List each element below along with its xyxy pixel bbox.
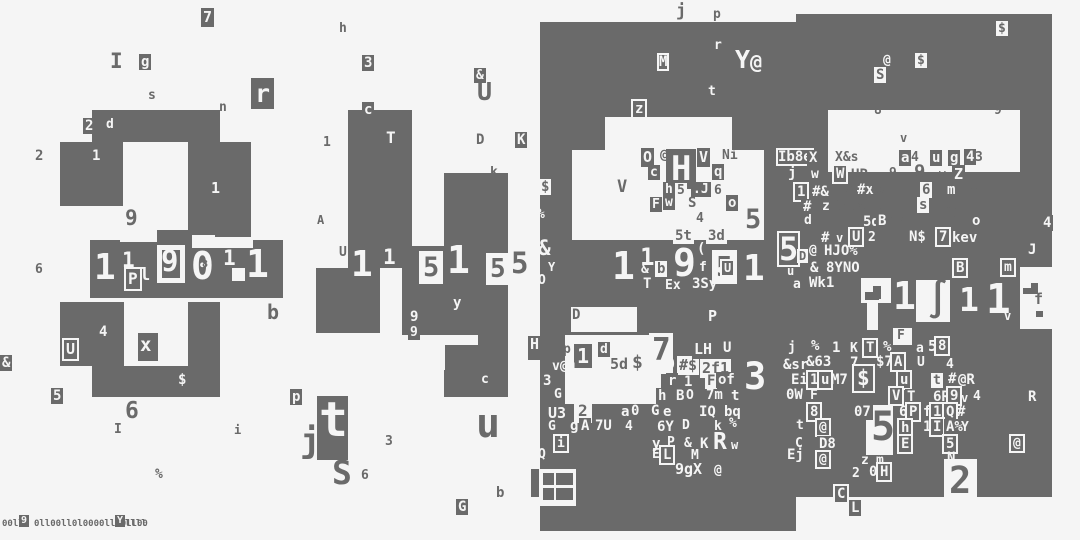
noise-glyph: %m1	[858, 200, 881, 213]
noise-glyph: 07	[852, 404, 873, 420]
noise-glyph: r	[251, 78, 274, 109]
noise-glyph: g	[570, 419, 578, 433]
noise-glyph: 1	[223, 248, 236, 269]
noise-glyph: 9	[410, 310, 418, 324]
noise-glyph: H	[878, 464, 890, 480]
noise-glyph: E	[899, 436, 911, 452]
noise-glyph: 5	[51, 388, 63, 404]
noise-glyph: &	[0, 355, 12, 371]
noise-glyph: U	[477, 79, 492, 104]
noise-glyph: 9	[125, 208, 138, 229]
noise-glyph: A	[892, 354, 904, 370]
noise-glyph: 1	[574, 344, 592, 368]
noise-glyph: &	[538, 238, 551, 259]
noise-glyph: Ej	[787, 448, 804, 462]
noise-block	[867, 303, 878, 330]
noise-glyph: &	[810, 261, 818, 275]
noise-glyph: V	[890, 388, 902, 404]
noise-glyph: s	[148, 89, 156, 102]
noise-block	[543, 488, 554, 500]
noise-glyph: G	[554, 388, 562, 401]
noise-glyph: 9	[408, 325, 420, 340]
noise-canvas: 7hIgsrn2d21191AU611Pl90811b4Ux&5$6pIi%jt…	[0, 0, 1080, 540]
noise-glyph: w	[663, 195, 675, 210]
noise-glyph: (	[697, 242, 705, 256]
noise-glyph: Ei	[791, 373, 808, 387]
noise-block	[556, 488, 573, 500]
noise-glyph: 3Sy	[692, 277, 717, 291]
noise-glyph: D	[682, 419, 690, 432]
noise-glyph: 2	[868, 231, 876, 244]
noise-glyph: 5p	[899, 197, 916, 211]
noise-glyph: k	[490, 166, 498, 179]
noise-glyph: 3	[541, 373, 553, 389]
noise-glyph: $	[854, 366, 873, 391]
noise-glyph: g	[139, 54, 151, 70]
noise-glyph: K	[515, 132, 527, 148]
noise-glyph: 3	[362, 55, 374, 71]
noise-glyph: %	[729, 417, 737, 430]
noise-glyph: T	[386, 130, 396, 146]
noise-glyph: b	[496, 486, 504, 500]
noise-glyph: j	[300, 424, 320, 458]
noise-glyph: F	[897, 329, 905, 342]
noise-block	[348, 110, 412, 246]
noise-glyph: T	[905, 389, 917, 405]
noise-glyph: H	[530, 337, 539, 352]
noise-glyph: 5d	[610, 357, 628, 372]
noise-glyph: o	[726, 195, 738, 211]
noise-glyph: t	[931, 373, 943, 388]
noise-glyph: 1	[795, 184, 807, 200]
noise-block	[873, 286, 881, 299]
noise-glyph: 6	[125, 400, 139, 423]
noise-glyph: P	[706, 307, 719, 326]
noise-glyph: p	[563, 343, 571, 356]
noise-glyph: E	[652, 448, 660, 461]
noise-glyph: $	[539, 179, 551, 195]
noise-glyph: i	[555, 436, 567, 451]
noise-glyph: jX	[845, 215, 862, 229]
noise-glyph: 6	[920, 182, 932, 198]
noise-glyph: 5	[419, 251, 443, 284]
noise-glyph: S	[688, 196, 696, 210]
noise-glyph: w	[939, 168, 946, 179]
noise-glyph: 4	[973, 390, 981, 403]
noise-glyph: h	[899, 420, 911, 436]
noise-glyph: K	[698, 436, 710, 452]
noise-glyph: U	[722, 261, 733, 275]
noise-glyph: 1	[246, 245, 269, 283]
noise-glyph: 1	[893, 277, 916, 315]
noise-glyph: O	[686, 389, 694, 402]
noise-glyph: D	[797, 249, 808, 263]
noise-glyph: s	[917, 197, 929, 213]
noise-glyph: Y	[961, 421, 969, 434]
noise-glyph: v	[1004, 310, 1011, 322]
noise-glyph: D	[572, 308, 580, 322]
noise-block	[445, 335, 478, 345]
noise-glyph: 6	[361, 469, 369, 482]
noise-block	[605, 117, 732, 150]
noise-glyph: 4	[696, 212, 704, 225]
noise-glyph: J	[1028, 243, 1036, 257]
noise-glyph: Ni	[722, 149, 738, 162]
noise-glyph: K	[634, 206, 648, 229]
noise-glyph: 9	[161, 247, 178, 276]
noise-glyph: Q	[944, 404, 956, 420]
noise-glyph: #	[946, 371, 958, 387]
noise-glyph: c	[970, 184, 978, 197]
noise-glyph: i	[234, 424, 241, 436]
noise-glyph: U	[917, 356, 925, 369]
noise-glyph: 8	[202, 260, 208, 270]
noise-glyph: ci	[946, 199, 963, 213]
noise-glyph: 4	[625, 420, 633, 433]
noise-glyph: 1	[832, 341, 840, 355]
noise-glyph: I	[110, 51, 123, 72]
noise-glyph: %	[881, 339, 893, 355]
noise-glyph: z	[861, 454, 869, 467]
noise-glyph: $	[996, 21, 1008, 36]
noise-glyph: X	[807, 150, 819, 166]
noise-glyph: $	[178, 373, 186, 387]
noise-block	[1036, 311, 1043, 317]
noise-glyph: &sr	[783, 358, 808, 372]
noise-glyph: 4	[946, 358, 954, 371]
noise-glyph: @	[714, 464, 722, 477]
noise-glyph: p	[290, 389, 302, 405]
noise-glyph: M	[659, 55, 667, 69]
noise-glyph: S	[874, 67, 886, 83]
noise-glyph: R	[713, 431, 727, 454]
noise-glyph: C	[835, 486, 847, 502]
noise-glyph: y	[451, 295, 463, 311]
noise-glyph: 1	[211, 181, 220, 196]
noise-glyph: u	[930, 150, 942, 166]
noise-glyph: 5	[511, 249, 528, 278]
noise-glyph: 0	[869, 465, 877, 479]
noise-glyph: t	[796, 419, 804, 432]
noise-glyph: 8	[874, 104, 882, 117]
noise-block	[531, 469, 539, 497]
noise-glyph: U	[339, 246, 347, 259]
noise-glyph: T	[643, 277, 651, 291]
noise-glyph: O	[538, 274, 546, 287]
noise-glyph: Q	[538, 448, 546, 461]
noise-glyph: UP	[851, 168, 868, 182]
noise-glyph: 0	[631, 404, 639, 418]
noise-glyph: z	[633, 101, 645, 117]
noise-glyph: U	[721, 340, 733, 356]
noise-block	[92, 366, 220, 397]
noise-glyph: u	[819, 372, 831, 388]
noise-glyph: a	[899, 150, 911, 166]
noise-glyph: P	[907, 404, 919, 420]
noise-glyph: 9	[994, 104, 1002, 117]
noise-glyph: Qz	[871, 184, 887, 197]
noise-glyph: 1	[323, 136, 331, 149]
noise-glyph: 7U	[595, 419, 612, 433]
noise-glyph: 1	[959, 283, 979, 316]
noise-glyph: $	[632, 354, 643, 372]
noise-glyph: K	[948, 215, 956, 228]
noise-glyph: 7m	[706, 388, 723, 402]
noise-glyph: 6Y	[657, 420, 674, 434]
noise-glyph: @	[817, 452, 829, 467]
noise-glyph: p9y	[650, 211, 677, 226]
noise-glyph: t	[319, 396, 348, 444]
noise-glyph: 2	[35, 149, 43, 163]
noise-glyph: c	[362, 102, 374, 118]
noise-glyph: Y	[735, 47, 750, 72]
noise-glyph: N$	[909, 230, 926, 244]
noise-glyph: 1	[743, 251, 765, 287]
noise-glyph: 9	[889, 167, 897, 180]
noise-glyph: r	[666, 373, 678, 389]
noise-block	[380, 335, 445, 370]
noise-glyph: 3	[975, 151, 983, 164]
noise-glyph: f	[699, 261, 707, 274]
noise-glyph: K	[850, 342, 858, 355]
noise-glyph: 2	[852, 467, 860, 480]
noise-block	[543, 473, 554, 485]
noise-glyph: 1	[447, 241, 470, 279]
noise-glyph: RnB	[832, 200, 855, 213]
noise-glyph: Y	[548, 261, 555, 273]
noise-glyph: p	[713, 8, 721, 21]
noise-glyph: W	[426, 371, 434, 385]
noise-glyph: 5	[675, 183, 687, 198]
noise-glyph: d	[106, 118, 114, 131]
noise-glyph: 6	[714, 184, 722, 197]
noise-glyph: j	[676, 3, 686, 20]
noise-glyph: G	[548, 420, 556, 433]
noise-glyph: A	[579, 418, 591, 434]
noise-glyph: 5	[779, 233, 798, 265]
noise-glyph: z	[820, 199, 832, 214]
noise-glyph: 3	[744, 358, 766, 395]
noise-glyph: &63	[806, 355, 831, 369]
noise-glyph: $7	[876, 355, 893, 369]
noise-glyph: 7	[201, 8, 214, 27]
noise-glyph: ∫	[927, 282, 949, 318]
noise-glyph: D	[476, 133, 484, 147]
noise-glyph: v	[900, 132, 907, 144]
noise-glyph: g	[948, 150, 960, 166]
noise-block	[188, 302, 220, 366]
noise-glyph: x	[140, 336, 151, 355]
noise-glyph: 3d	[706, 228, 727, 244]
noise-glyph: 2	[83, 118, 95, 134]
noise-block	[444, 173, 508, 397]
noise-glyph: A	[317, 214, 324, 226]
noise-glyph: 1	[684, 375, 692, 389]
noise-glyph: U	[64, 340, 77, 359]
noise-glyph: w	[809, 167, 821, 182]
noise-glyph: 9	[914, 163, 925, 182]
noise-glyph: u	[787, 265, 794, 277]
noise-glyph: 5	[745, 206, 761, 233]
noise-glyph: b	[267, 302, 279, 322]
noise-glyph: @	[1011, 436, 1023, 451]
noise-glyph: 5	[486, 253, 510, 285]
noise-glyph: 4	[99, 325, 107, 339]
noise-glyph: 9gX	[675, 462, 702, 477]
noise-glyph: a	[916, 342, 924, 355]
noise-glyph: L	[661, 447, 673, 463]
noise-glyph: @	[809, 244, 817, 257]
noise-glyph: h	[656, 388, 668, 404]
noise-glyph: llll	[125, 520, 147, 529]
noise-glyph: u	[476, 404, 500, 444]
noise-glyph: 2	[949, 462, 971, 499]
noise-glyph: 9	[948, 388, 960, 404]
noise-glyph: 1	[931, 404, 943, 420]
noise-glyph: n	[219, 101, 227, 114]
noise-glyph: S	[332, 456, 352, 489]
noise-glyph: e	[661, 404, 673, 420]
noise-glyph: j	[788, 166, 796, 180]
noise-glyph: 5	[871, 407, 895, 447]
noise-glyph: T	[864, 340, 876, 356]
noise-glyph: W	[834, 166, 846, 182]
noise-glyph: c	[481, 373, 489, 386]
noise-glyph: t	[708, 85, 716, 98]
noise-glyph: LH	[692, 340, 714, 359]
noise-glyph: of	[716, 372, 737, 388]
noise-block	[556, 473, 573, 485]
noise-glyph: L	[849, 500, 861, 516]
noise-glyph: @R	[958, 373, 975, 387]
noise-glyph: 8	[808, 404, 820, 420]
noise-glyph: D8	[817, 436, 838, 452]
noise-glyph: B	[954, 260, 966, 276]
noise-glyph: Z	[845, 184, 853, 197]
noise-glyph: d	[804, 214, 812, 227]
noise-glyph: &	[641, 263, 649, 276]
noise-glyph: 3	[385, 435, 393, 448]
noise-glyph: 7	[937, 229, 949, 245]
noise-glyph: 1	[383, 247, 396, 268]
noise-block	[571, 307, 637, 332]
noise-glyph: Wk1	[809, 276, 834, 290]
noise-glyph: 8YNO	[824, 260, 862, 276]
noise-glyph: 4	[1041, 215, 1053, 231]
noise-glyph: f	[1034, 292, 1043, 307]
noise-glyph: c	[648, 165, 660, 180]
noise-glyph: 1	[612, 247, 635, 285]
noise-glyph: 9	[666, 357, 675, 372]
noise-glyph: M7	[831, 373, 848, 387]
noise-glyph: %	[809, 338, 821, 354]
noise-glyph: I	[931, 419, 943, 435]
noise-glyph: J2	[887, 215, 904, 229]
noise-glyph: 1	[351, 247, 373, 283]
noise-glyph: IQ	[699, 405, 716, 419]
noise-glyph: b	[655, 261, 667, 277]
noise-block	[120, 233, 157, 242]
noise-glyph: 1	[122, 250, 135, 271]
noise-glyph: V	[617, 179, 627, 196]
noise-glyph: v	[961, 392, 968, 404]
noise-glyph: 8	[936, 338, 948, 354]
noise-glyph: q	[712, 164, 724, 180]
noise-glyph: @	[750, 52, 762, 72]
noise-glyph: X&s	[835, 151, 858, 164]
noise-glyph: a	[793, 278, 801, 291]
noise-glyph: w	[731, 439, 738, 451]
noise-glyph: HJO%	[824, 244, 858, 258]
noise-glyph: r	[714, 39, 722, 52]
noise-glyph: m	[1002, 260, 1014, 275]
noise-glyph: t	[729, 388, 741, 404]
noise-glyph: 1	[94, 250, 116, 286]
noise-glyph: I	[114, 423, 122, 436]
noise-glyph: m	[945, 182, 957, 198]
noise-glyph: @	[817, 420, 829, 435]
noise-glyph: Y	[115, 515, 125, 527]
noise-glyph: o	[970, 213, 982, 229]
noise-glyph: 1	[92, 149, 100, 163]
noise-glyph: a	[619, 404, 631, 420]
noise-glyph: F	[810, 389, 818, 402]
noise-glyph: G	[651, 404, 659, 418]
noise-glyph: j	[788, 341, 796, 354]
noise-glyph: P	[126, 269, 140, 289]
noise-glyph: B	[674, 388, 686, 404]
noise-glyph: #	[957, 405, 965, 419]
noise-glyph: h	[339, 22, 347, 35]
noise-glyph: %	[155, 468, 163, 481]
noise-glyph: v@q	[552, 360, 575, 373]
noise-glyph: d	[598, 342, 610, 357]
noise-glyph: @	[883, 54, 891, 67]
noise-glyph: V	[697, 148, 710, 167]
noise-glyph: 0W	[786, 388, 803, 402]
noise-glyph: Ex	[665, 279, 681, 292]
noise-glyph: u	[898, 372, 910, 388]
noise-glyph: %	[537, 208, 545, 221]
noise-glyph: 9	[19, 515, 29, 527]
noise-glyph: $	[915, 53, 927, 68]
noise-glyph: #&	[810, 184, 831, 200]
noise-glyph: G	[456, 499, 468, 515]
noise-glyph: R	[1028, 390, 1036, 404]
noise-glyph: kev	[952, 231, 977, 245]
noise-glyph: l	[140, 267, 150, 284]
noise-glyph: 6	[35, 263, 43, 276]
